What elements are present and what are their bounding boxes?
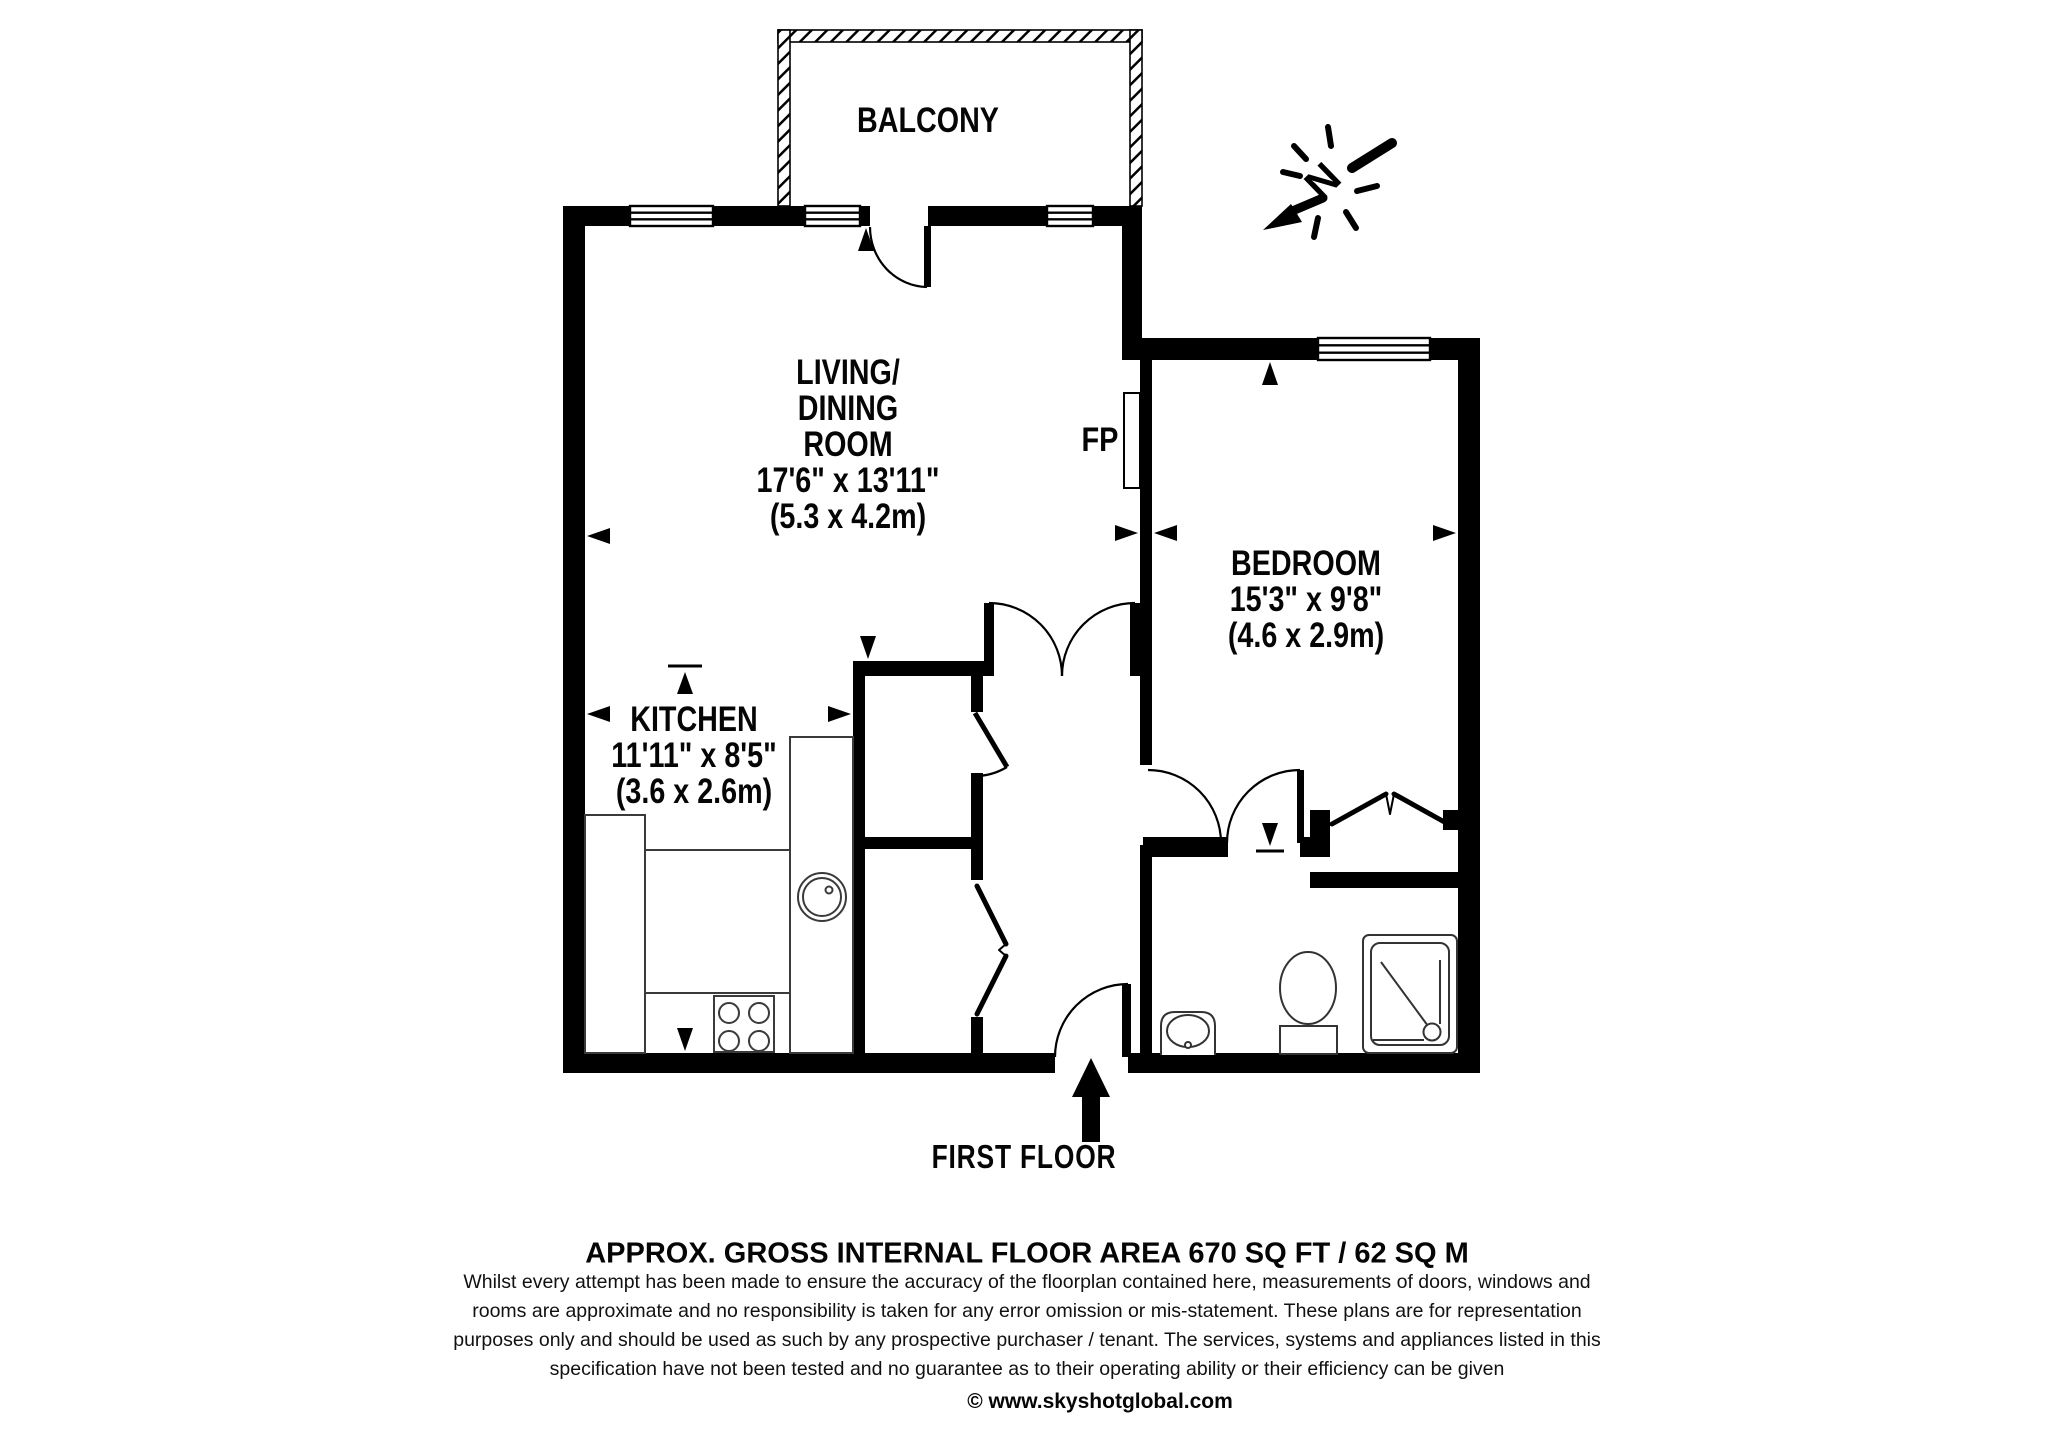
disclaimer-line: specification have not been tested and n…: [397, 1355, 1657, 1384]
floorplan-drawing: N: [0, 0, 2048, 1448]
cupboard-door-leaf: [975, 713, 1007, 767]
bathroom-fixtures: [1161, 935, 1457, 1055]
living-room-dims-metric: (5.3 x 4.2m): [757, 499, 940, 535]
bedroom-label: BEDROOM 15'3" x 9'8" (4.6 x 2.9m): [1228, 546, 1384, 654]
bedroom-dims-metric: (4.6 x 2.9m): [1228, 618, 1384, 654]
fireplace-label: FP: [1082, 422, 1119, 458]
kitchen-sink-icon: [798, 873, 846, 921]
kitchen-counter-left: [585, 815, 645, 1053]
floor-title: FIRST FLOOR: [932, 1139, 1117, 1175]
living-room-label: LIVING/ DINING ROOM 17'6" x 13'11" (5.3 …: [757, 355, 940, 535]
compass-letter: N: [1295, 153, 1349, 208]
living-window-right: [1047, 206, 1093, 226]
shower-icon: [1363, 935, 1457, 1053]
stove-icon: [714, 996, 774, 1052]
bathroom-door-arc: [1227, 770, 1300, 843]
hall-double-door-left-leaf: [984, 603, 994, 676]
kitchen-dims-imperial: 11'11" x 8'5": [611, 738, 776, 774]
kitchen-name: KITCHEN: [611, 702, 776, 738]
living-window-balcony: [805, 206, 860, 226]
kitchen-dim-arrow-right: [828, 706, 851, 722]
living-room-name: LIVING/: [757, 355, 940, 391]
kitchen-dim-arrow-down: [677, 1028, 693, 1051]
entry-door-arc: [1055, 984, 1128, 1057]
north-arrow-icon: N: [1263, 127, 1392, 237]
fireplace-symbol: [1124, 393, 1140, 488]
entry-door-leaf: [1122, 984, 1131, 1057]
disclaimer-text: Whilst every attempt has been made to en…: [397, 1268, 1657, 1384]
living-room-dims-imperial: 17'6" x 13'11": [757, 463, 940, 499]
bedroom-name: BEDROOM: [1228, 546, 1384, 582]
gross-area-label: APPROX. GROSS INTERNAL FLOOR AREA 670 SQ…: [585, 1238, 1469, 1271]
bathroom-door-leaf: [1297, 770, 1304, 843]
balcony-label: BALCONY: [857, 103, 999, 139]
wardrobe-bifold-doors: [1332, 794, 1448, 824]
living-dim-arrow-down: [860, 636, 876, 659]
entry-arrow-icon: [1072, 1058, 1110, 1142]
kitchen-label: KITCHEN 11'11" x 8'5" (3.6 x 2.6m): [611, 702, 776, 810]
bedroom-dim-arrow-left: [1154, 525, 1177, 541]
living-dim-arrow-left: [587, 528, 610, 544]
window-symbols: [630, 206, 1430, 360]
bedroom-door-arc: [1148, 770, 1221, 843]
kitchen-dim-arrow-up: [677, 672, 693, 694]
copyright-text: © www.skyshotglobal.com: [967, 1390, 1233, 1414]
bedroom-dim-arrow-up: [1262, 362, 1278, 385]
disclaimer-line: purposes only and should be used as such…: [397, 1326, 1657, 1355]
bedroom-dims-imperial: 15'3" x 9'8": [1228, 582, 1384, 618]
basin-icon: [1161, 1012, 1215, 1055]
bedroom-dim-arrow-right: [1433, 525, 1456, 541]
hall-double-door-left-arc: [989, 603, 1062, 676]
bedroom-window: [1318, 338, 1430, 360]
hall-cupboard-bifold-doors: [977, 886, 1006, 1014]
balcony-door-arc: [870, 227, 927, 287]
living-dim-arrow-right: [1115, 525, 1138, 541]
bedroom-dim-arrow-down: [1262, 823, 1278, 846]
kitchen-counter-center: [645, 850, 790, 993]
disclaimer-line: rooms are approximate and no responsibil…: [397, 1297, 1657, 1326]
disclaimer-line: Whilst every attempt has been made to en…: [397, 1268, 1657, 1297]
hall-double-door-right-arc: [1062, 603, 1135, 676]
balcony-door-leaf: [924, 226, 931, 287]
hall-double-door-right-leaf: [1130, 603, 1140, 676]
living-window-left: [630, 206, 713, 226]
kitchen-dims-metric: (3.6 x 2.6m): [611, 774, 776, 810]
toilet-icon: [1280, 952, 1337, 1054]
floorplan-page: N BALCONY LIVING/ DINING ROOM 17'6" x 13…: [0, 0, 2048, 1448]
kitchen-dim-arrow-left: [587, 706, 610, 722]
